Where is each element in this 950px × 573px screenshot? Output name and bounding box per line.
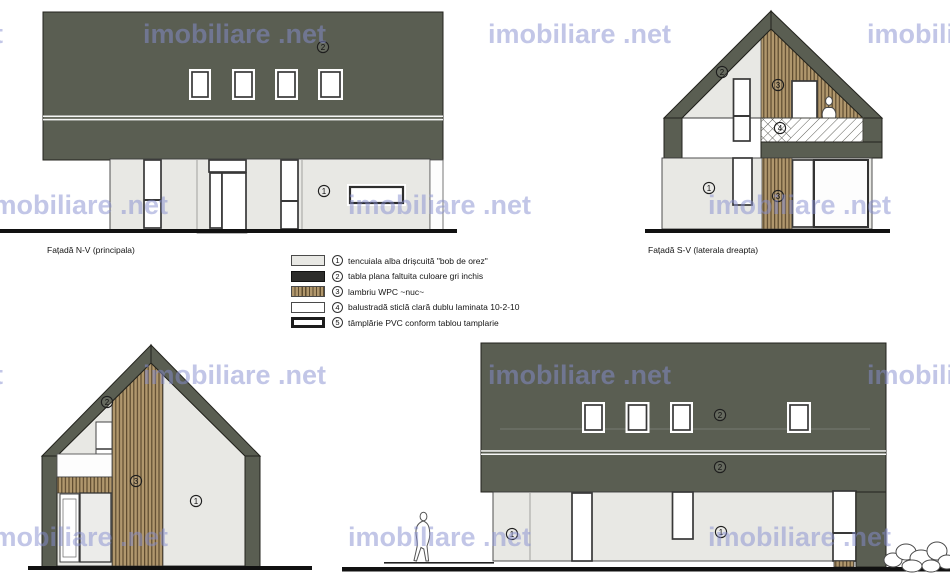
se-seam-line: [481, 454, 886, 456]
facade-ne: 2 3 1: [28, 345, 312, 570]
ne-eave-right: [245, 456, 260, 567]
legend-item-glass: 4 balustradă sticlă clară dublu laminata…: [291, 302, 520, 313]
legend-number: 4: [332, 302, 343, 313]
nv-window-right: [281, 160, 298, 229]
se-marker-plaster-left: 1: [506, 528, 517, 539]
nv-marker-plaster: 1: [318, 185, 329, 196]
ne-wood-strip: [57, 477, 112, 493]
facade-se: 2 2 1 1: [342, 343, 950, 572]
ne-door-left: [60, 494, 79, 562]
wood-swatch: [291, 286, 325, 297]
metal-swatch: [291, 271, 325, 282]
ne-door-right: [80, 493, 111, 562]
facade-sv-label: Fațadă S-V (laterala dreapta): [648, 245, 758, 255]
nv-window-left: [144, 160, 161, 228]
sv-lower-window: [733, 158, 752, 205]
se-seam-line: [481, 450, 886, 452]
sv-lower-glazing: [814, 160, 868, 227]
ne-marker-plaster: 1: [190, 495, 201, 506]
sv-marker-plaster: 1: [703, 182, 714, 193]
elevation-sheet: 2 1 2 3: [0, 0, 950, 573]
sv-gable-window: [734, 79, 751, 141]
svg-text:1: 1: [510, 530, 515, 539]
materials-legend: 1 tencuiala alba drișcuită "bob de orez"…: [291, 255, 520, 333]
facade-nv: 2 1: [0, 12, 457, 233]
facade-sv: 2 3 4 1 3: [645, 11, 890, 233]
legend-label: tâmplărie PVC conform tablou tamplarie: [348, 318, 499, 328]
pvc-swatch: [291, 317, 325, 328]
sv-marker-wood-top: 3: [772, 79, 783, 90]
se-marker-plaster-right: 1: [715, 526, 726, 537]
facade-nv-label: Fațadă N-V (principala): [47, 245, 135, 255]
se-marker-metal-top: 2: [714, 409, 725, 420]
se-wood-grate: [834, 561, 854, 567]
se-marker-metal-bottom: 2: [714, 461, 725, 472]
sv-lower-door: [793, 160, 814, 227]
ne-marker-wood: 3: [130, 475, 141, 486]
legend-label: balustradă sticlă clară dublu laminata 1…: [348, 302, 520, 312]
svg-text:3: 3: [134, 477, 139, 486]
se-ground-line: [342, 567, 950, 572]
se-person-figure: [414, 512, 430, 561]
nv-ground-line: [0, 229, 457, 233]
legend-number: 2: [332, 271, 343, 282]
svg-text:4: 4: [778, 124, 783, 133]
sv-marker-wood-bottom: 3: [772, 190, 783, 201]
sv-eave-left: [664, 118, 682, 158]
se-window-right: [833, 491, 856, 567]
legend-number: 3: [332, 286, 343, 297]
ne-ground-line: [28, 566, 312, 570]
svg-text:2: 2: [718, 463, 723, 472]
nv-seam-line: [43, 116, 443, 118]
legend-number: 1: [332, 255, 343, 266]
nv-seam-line: [43, 119, 443, 121]
svg-text:1: 1: [707, 184, 712, 193]
legend-label: lambriu WPC ~nuc~: [348, 287, 424, 297]
sv-ground-line: [645, 229, 890, 233]
svg-text:1: 1: [719, 528, 724, 537]
ne-window-band: [57, 454, 112, 477]
plaster-swatch: [291, 255, 325, 266]
svg-text:2: 2: [720, 68, 725, 77]
legend-label: tencuiala alba drișcuită "bob de orez": [348, 256, 488, 266]
ne-gable-window: [96, 422, 112, 454]
nv-marker-metal: 2: [317, 41, 328, 52]
legend-item-plaster: 1 tencuiala alba drișcuită "bob de orez": [291, 255, 520, 266]
legend-item-metal: 2 tabla plana faltuita culoare gri inchi…: [291, 271, 520, 282]
se-terrain-line: [384, 562, 494, 564]
sv-marker-metal: 2: [716, 66, 727, 77]
sv-marker-glass: 4: [774, 122, 785, 133]
svg-text:2: 2: [321, 43, 326, 52]
glass-swatch: [291, 302, 325, 313]
legend-item-pvc: 5 tâmplărie PVC conform tablou tamplarie: [291, 317, 520, 328]
ne-marker-metal: 2: [101, 396, 112, 407]
svg-text:1: 1: [322, 187, 327, 196]
se-window-mid: [673, 492, 694, 539]
ne-eave-left: [42, 456, 57, 567]
svg-text:2: 2: [718, 411, 723, 420]
nv-side-return: [430, 160, 443, 230]
sv-balcony-slab: [761, 142, 882, 158]
legend-label: tabla plana faltuita culoare gri inchis: [348, 271, 483, 281]
nv-vent-window: [347, 184, 406, 206]
legend-number: 5: [332, 317, 343, 328]
svg-text:3: 3: [776, 192, 781, 201]
svg-text:3: 3: [776, 81, 781, 90]
se-dark-corner: [856, 492, 886, 567]
legend-item-wood: 3 lambriu WPC ~nuc~: [291, 286, 520, 297]
svg-text:1: 1: [194, 497, 199, 506]
svg-text:2: 2: [105, 398, 110, 407]
se-window-tall: [572, 493, 592, 561]
